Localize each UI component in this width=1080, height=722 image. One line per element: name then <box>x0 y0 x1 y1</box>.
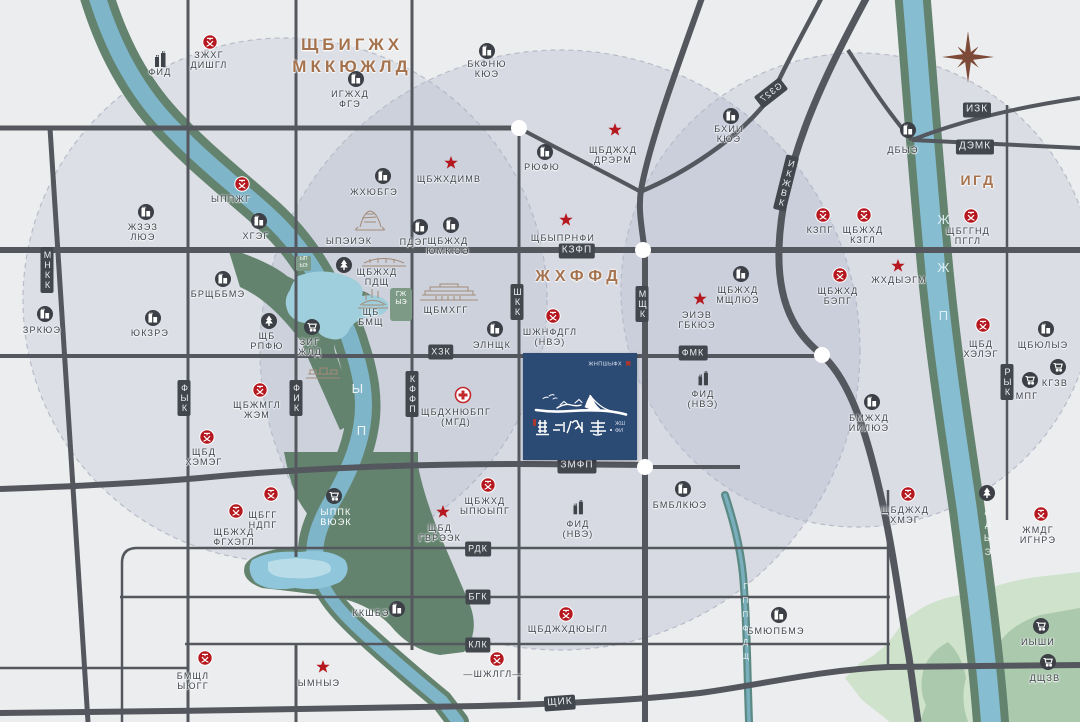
svg-text:ЖНПШЫФХ: ЖНПШЫФХ <box>588 362 622 368</box>
svg-text:ЖШ: ЖШ <box>615 421 625 427</box>
svg-text:ФИ: ФИ <box>615 428 623 434</box>
